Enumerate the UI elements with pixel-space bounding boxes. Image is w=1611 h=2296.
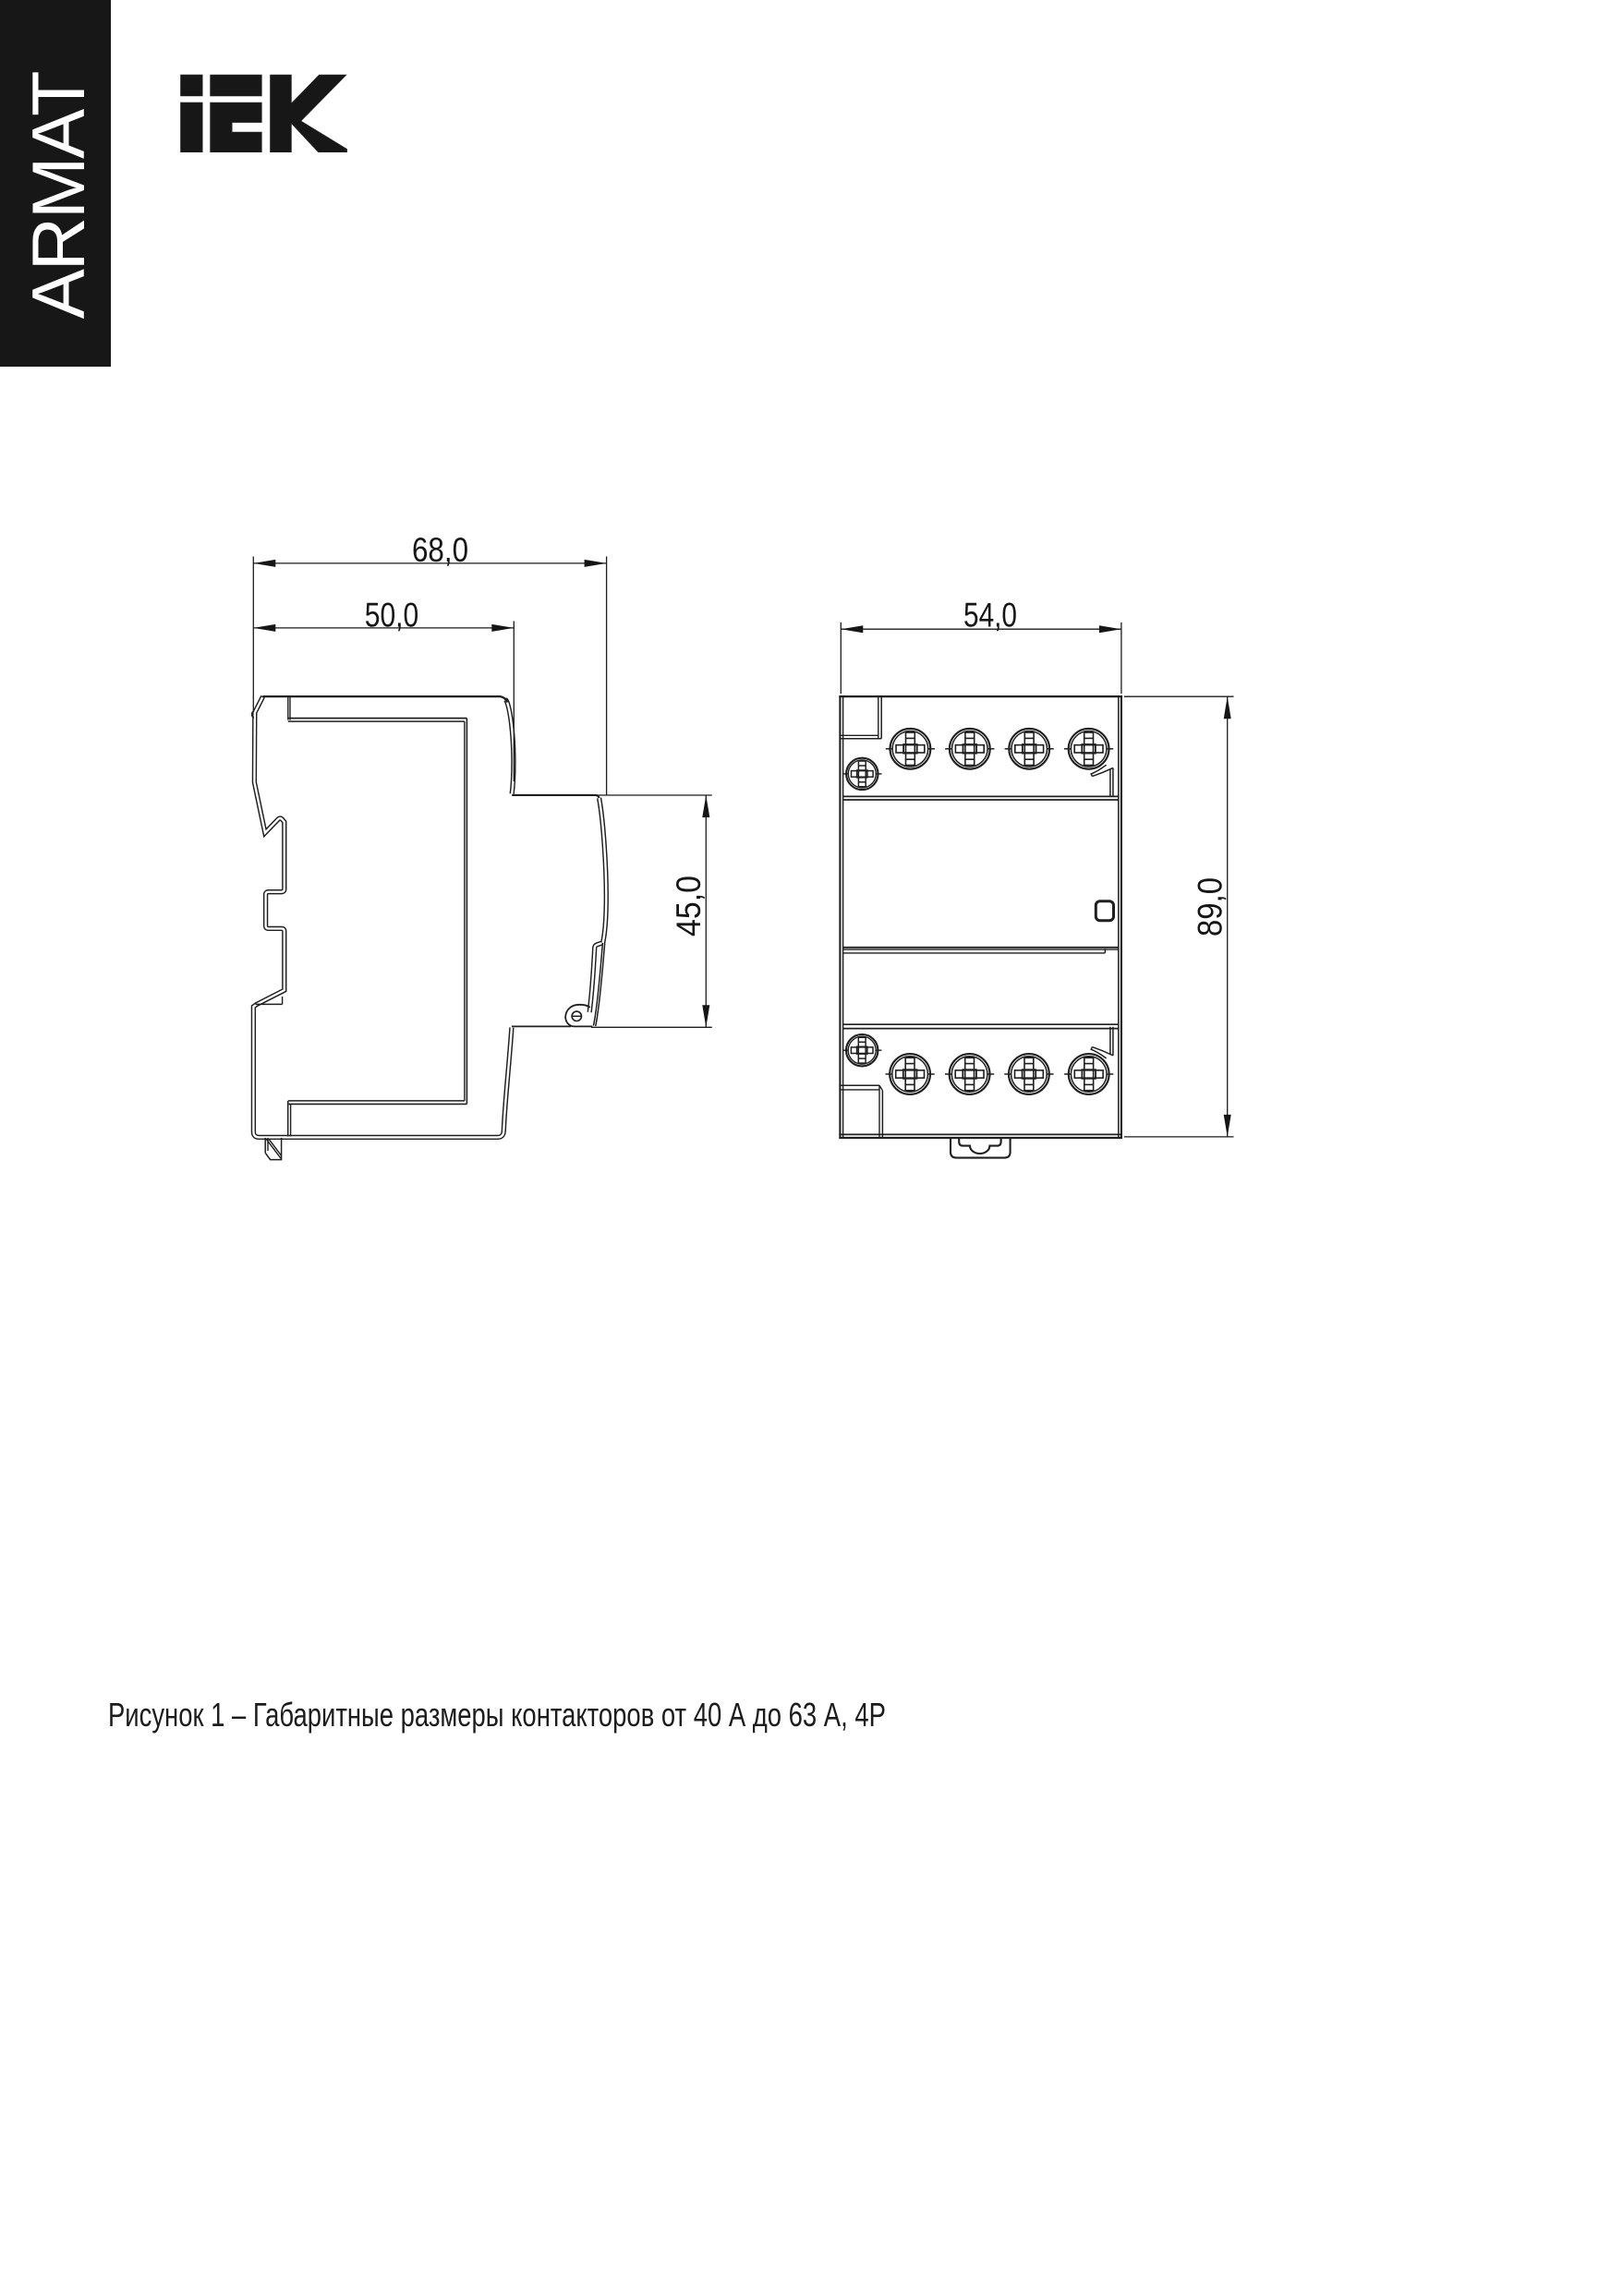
svg-text:68,0: 68,0 [412, 531, 468, 569]
svg-text:50,0: 50,0 [365, 597, 419, 634]
svg-text:45,0: 45,0 [670, 876, 708, 937]
svg-text:89,0: 89,0 [1192, 877, 1229, 937]
svg-text:54,0: 54,0 [963, 597, 1017, 634]
